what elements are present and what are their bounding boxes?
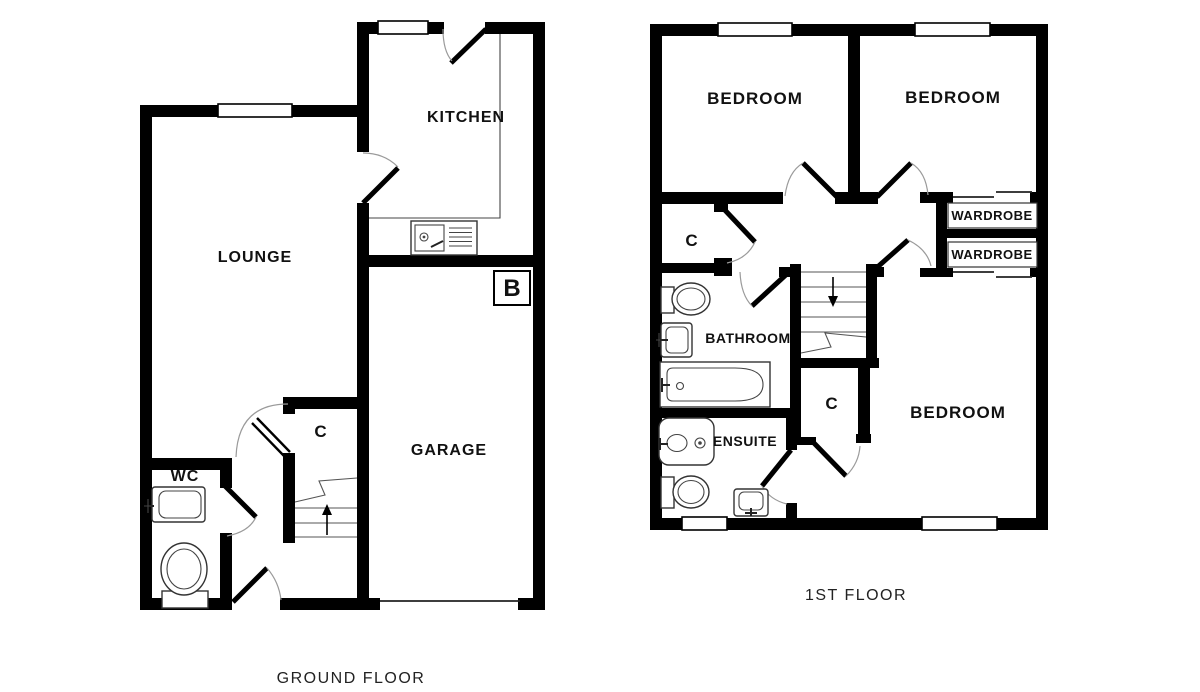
door-lounge-kitchen [363, 168, 398, 203]
window-bedroom-main [922, 517, 997, 530]
door-bedroom-right [877, 163, 911, 197]
window-lounge [218, 104, 292, 117]
door-hall-cupboard [252, 423, 285, 457]
shower [659, 418, 714, 465]
wc-basin [144, 487, 205, 522]
first-floor-plan: BEDROOM BEDROOM BEDROOM WARDROBE WARDROB… [650, 23, 1048, 604]
ensuite-toilet [661, 476, 709, 508]
door-ensuite [762, 450, 791, 486]
wc-toilet [161, 543, 208, 608]
door-kitchen-rear [451, 29, 486, 63]
boiler-box: B [494, 271, 530, 305]
door-bedroom-left [803, 163, 837, 197]
stairs-up [295, 478, 357, 537]
kitchen-label: KITCHEN [427, 109, 505, 126]
stairs-up-arrow [322, 504, 332, 515]
door-bedroom-main [873, 240, 908, 271]
window-ensuite [682, 517, 727, 530]
wc-label: WC [171, 468, 200, 485]
kitchen-counter [369, 34, 500, 218]
window-bedroom-right [915, 23, 990, 36]
boiler-label: B [503, 275, 520, 302]
bathtub [660, 362, 770, 407]
kitchen-sink [411, 221, 477, 255]
door-wc [225, 486, 256, 517]
ground-floor-title: GROUND FLOOR [277, 670, 426, 687]
garage-label: GARAGE [411, 442, 487, 459]
window-kitchen [378, 21, 428, 34]
ensuite-basin [734, 489, 768, 516]
bedroom-right-label: BEDROOM [905, 88, 1001, 107]
floorplan-svg: B [0, 0, 1200, 692]
wardrobe-top-label: WARDROBE [951, 208, 1032, 223]
wardrobe-bottom-label: WARDROBE [951, 247, 1032, 262]
bathroom-label: BATHROOM [705, 330, 790, 346]
bathroom-basin [656, 323, 692, 357]
window-bedroom-left [718, 23, 792, 36]
ensuite-label: ENSUITE [713, 433, 777, 449]
door-bedroom-cupboard [812, 441, 846, 476]
bedroom-left-label: BEDROOM [707, 89, 803, 108]
bathroom-toilet [661, 283, 710, 315]
stairs-down [801, 272, 866, 353]
landing-cupboard-label: C [685, 231, 698, 250]
bedroom-main-label: BEDROOM [910, 403, 1006, 422]
door-front [233, 568, 267, 602]
bedroom-cupboard-label: C [825, 394, 838, 413]
first-floor-title: 1ST FLOOR [805, 587, 907, 604]
door-bathroom [752, 272, 789, 306]
ground-cupboard-label: C [314, 422, 327, 441]
ground-floor-plan: B [140, 21, 545, 687]
door-landing-cupboard [722, 207, 755, 242]
lounge-label: LOUNGE [218, 249, 292, 266]
floorplan-page: B [0, 0, 1200, 692]
